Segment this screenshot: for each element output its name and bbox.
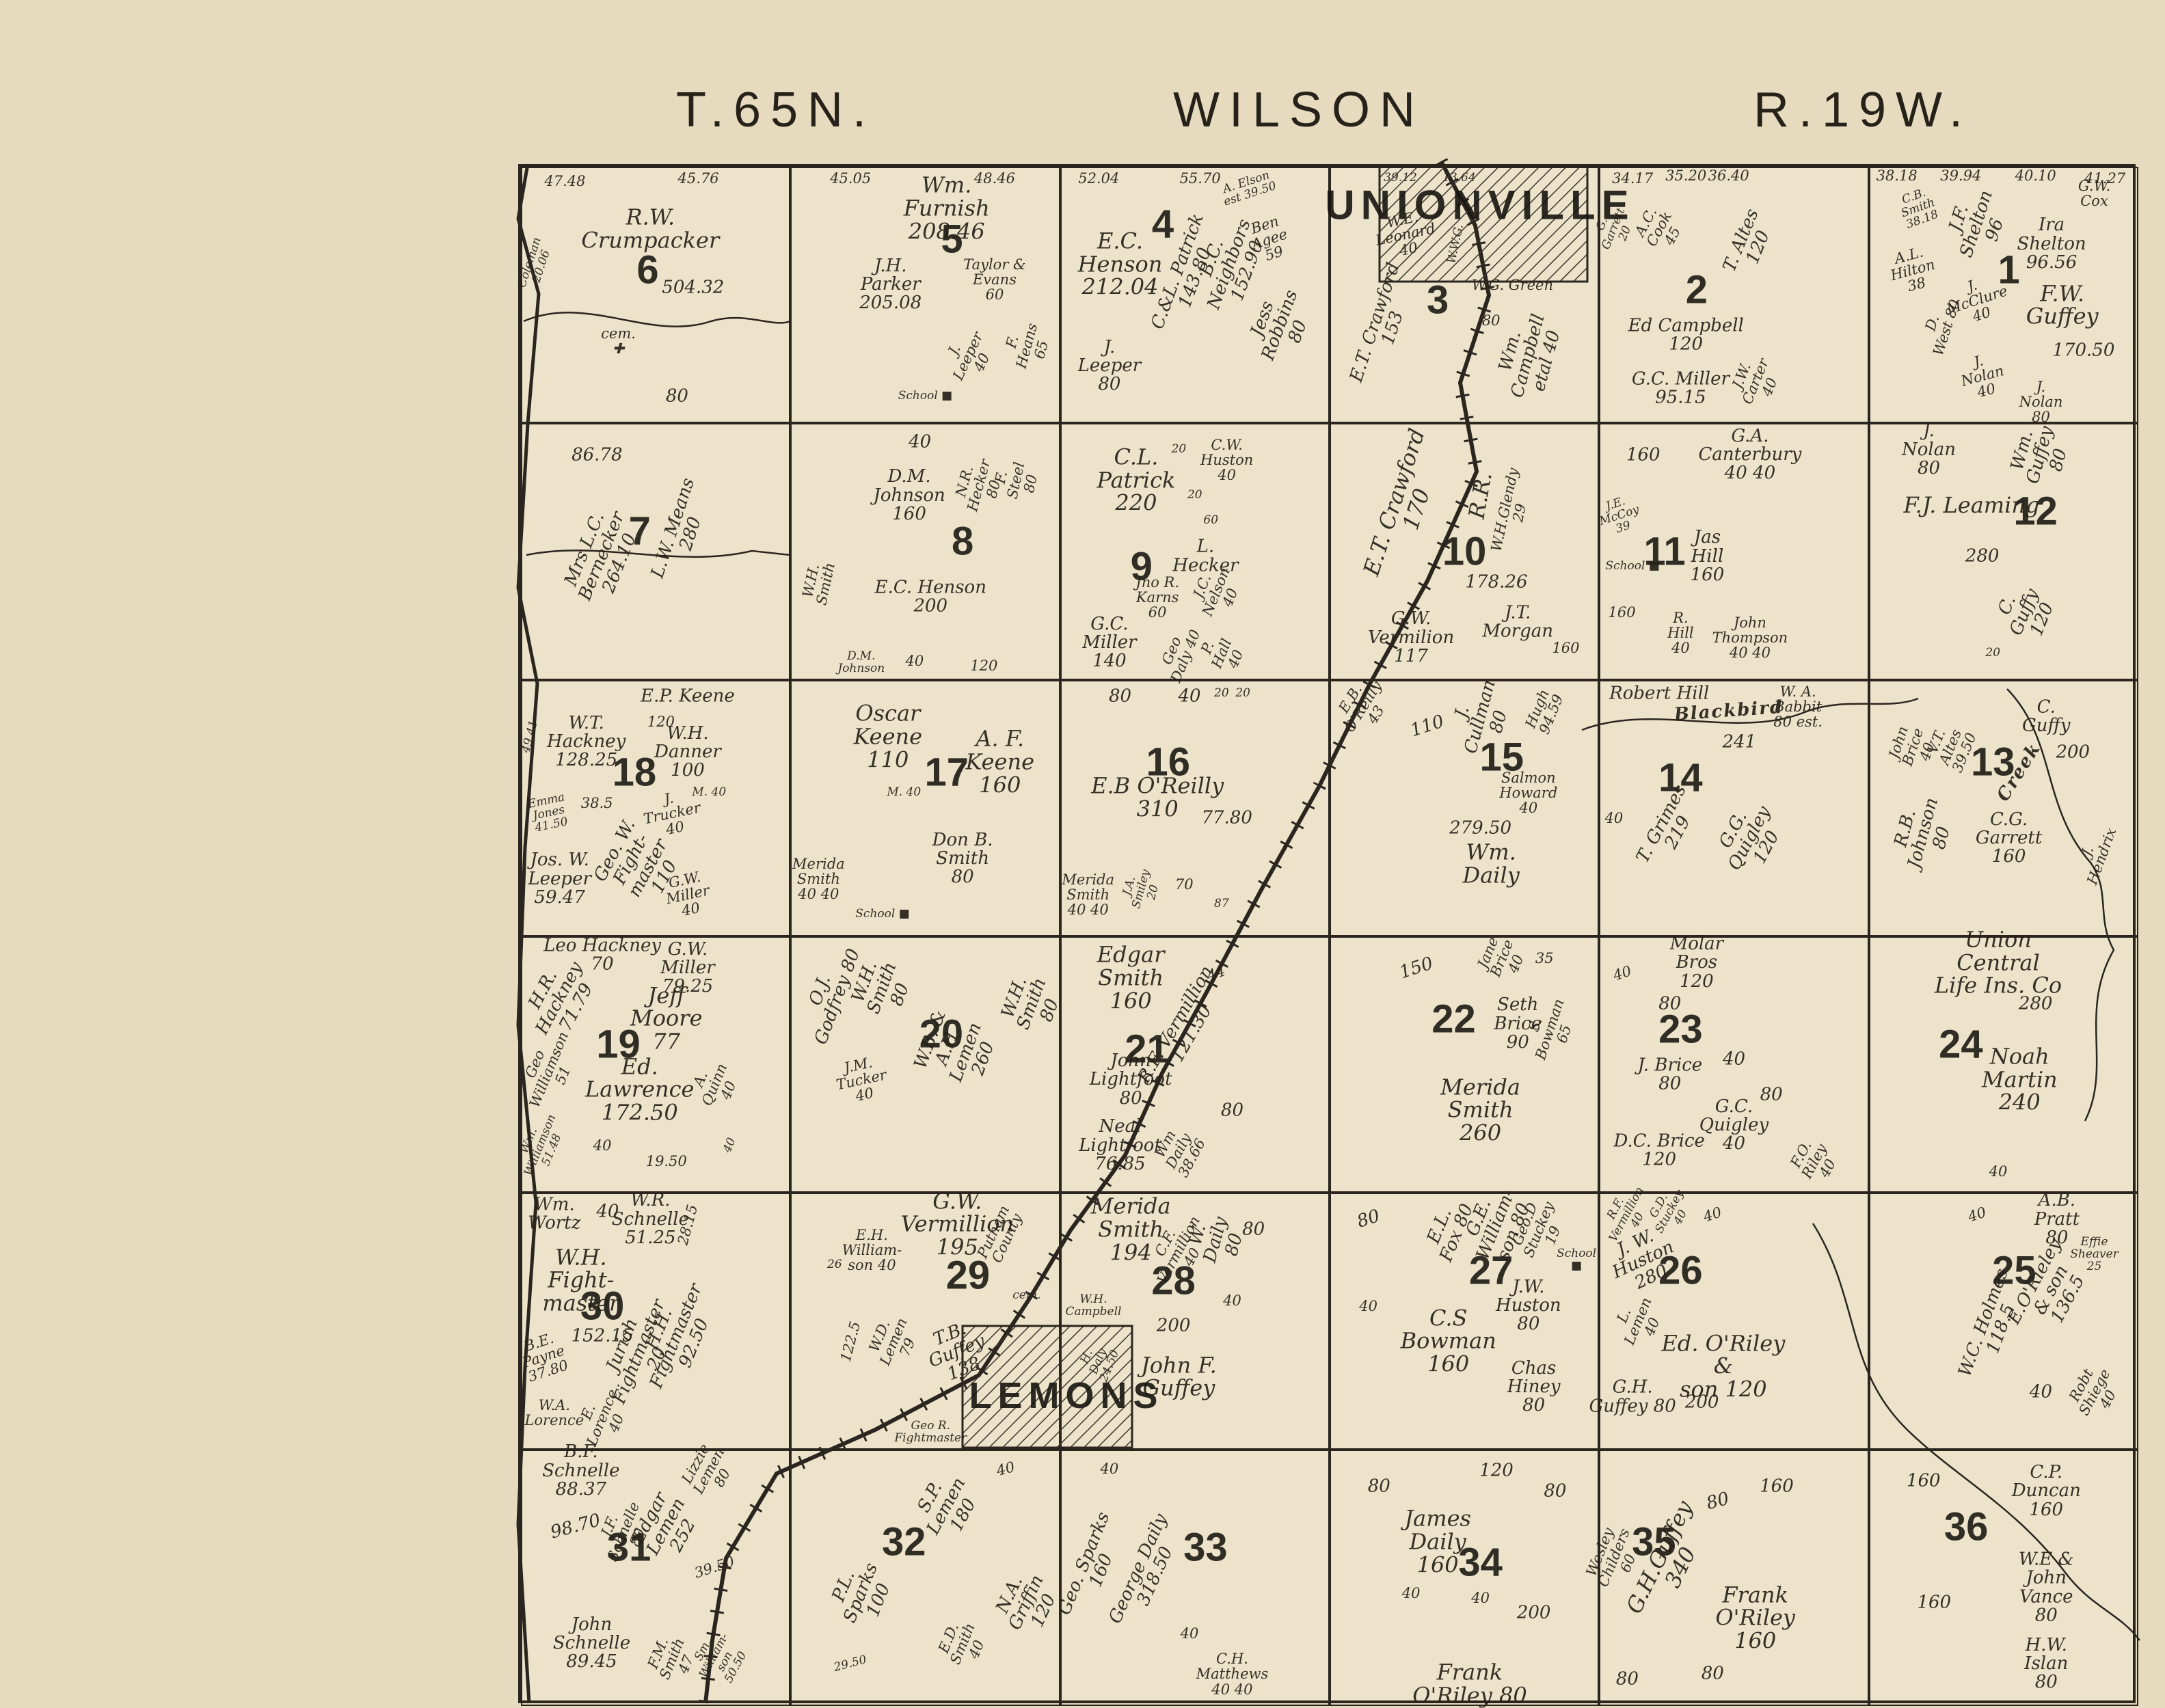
section-36: 36160C.P. Duncan 160W.E & John Vance 80H… <box>1869 1450 2138 1706</box>
parcel-label: R. Hill 40 <box>1667 610 1693 655</box>
parcel-label: 70 <box>1175 877 1194 892</box>
parcel-label: John Schnelle 89.45 <box>553 1616 630 1672</box>
parcel-label: Ed Campbell 120 <box>1628 317 1744 355</box>
parcel-label: G.W. Vermilion 117 <box>1368 610 1454 666</box>
parcel-label: 504.32 <box>662 278 724 297</box>
parcel-label: E.H. William- son 40 <box>842 1228 902 1273</box>
plat-map: 647.4845.76R.W. Crumpacker504.32cem. ✚80… <box>518 164 2136 1703</box>
parcel-label: 40 <box>2030 1383 2052 1401</box>
parcel-label: D.M. Johnson 160 <box>873 467 945 524</box>
parcel-label: 160 <box>1609 605 1636 620</box>
parcel-label: Merida Smith 40 40 <box>792 856 845 902</box>
parcel-label: 80 <box>1616 1670 1639 1688</box>
section-7: 786.78Mrs L.C. Bernecker 264.10L.W. Mean… <box>521 423 790 679</box>
section-27: 2780E.L. Fox 80G.E. William- son 80Geo.D… <box>1330 1193 1599 1449</box>
parcel-label: 35 <box>1535 951 1554 966</box>
town-label-unionville: UNIONVILLE <box>1325 182 1635 229</box>
parcel-label: Sm. William- son 50.50 <box>687 1626 753 1692</box>
parcel-label: F. Steel 80 <box>989 455 1043 506</box>
section-21: 21Edgar Smith 16044R.F. Vermillion 121.3… <box>1060 936 1330 1193</box>
parcel-label: J.T. Morgan <box>1478 604 1558 642</box>
parcel-label: G.C. Quigley 40 <box>1699 1098 1769 1154</box>
parcel-label: W.D. Lemen 79 <box>863 1310 923 1373</box>
parcel-label: 20 <box>1214 688 1229 700</box>
parcel-label: J.W. Carter 40 <box>1725 351 1785 411</box>
parcel-label: 86.78 <box>571 446 622 464</box>
parcel-label: 40 <box>1178 687 1200 705</box>
parcel-label: 40 <box>1359 1299 1377 1314</box>
section-19: 19Leo Hackney 70H.R. Hackney 71.79G.W. M… <box>521 936 790 1193</box>
plat-map-page: T.65N. WILSON R.19W. 647.4845.76R.W. Cru… <box>0 0 2165 1707</box>
parcel-label: C.G. Garrett 160 <box>1976 811 2042 867</box>
parcel-label: Jess Robbins 80 <box>1241 282 1319 369</box>
parcel-label: H.W. Islan 80 <box>2024 1636 2068 1692</box>
section-26: 26R.F. Vermillion 40G.D. Stuckey 4040J. … <box>1599 1193 1868 1449</box>
parcel-label: G.W. Cox <box>2078 178 2110 208</box>
section-33: 3340Geo. Sparks 160George Daily 318.5040… <box>1060 1450 1330 1706</box>
parcel-label: John Thompson 40 40 <box>1712 615 1788 660</box>
parcel-label: 200 <box>2056 743 2090 761</box>
parcel-label: C.B. Smith 38.18 <box>1896 186 1941 232</box>
parcel-label: 40 <box>1611 963 1632 983</box>
parcel-label: Jeff Moore 77 <box>630 984 703 1053</box>
parcel-label: T. Grimes 219 <box>1633 782 1706 875</box>
parcel-label: 80 <box>1658 994 1681 1013</box>
parcel-label: G.C. Miller 95.15 <box>1632 370 1730 408</box>
parcel-label: 178.26 <box>1466 573 1528 591</box>
parcel-label: Edgar Smith 160 <box>1097 944 1165 1013</box>
parcel-label: Chas Hiney 80 <box>1507 1359 1561 1415</box>
parcel-label: A. F. Keene 160 <box>966 728 1034 797</box>
parcel-label: D.C. Brice 120 <box>1613 1133 1704 1170</box>
section-12: 12J. Nolan 80Wm. Guffey 80F.J. Leaming28… <box>1869 423 2138 679</box>
parcel-label: C. Guffy 120 <box>1990 580 2060 645</box>
parcel-label: C. Guffy <box>2022 698 2071 735</box>
parcel-label: Jas Hill 160 <box>1691 528 1725 584</box>
parcel-label: J. Leeper 80 <box>1078 338 1142 394</box>
section-22: 22150Jane Brice 4035Seth Brice 90S. Bowm… <box>1330 936 1599 1193</box>
section-number-22: 22 <box>1431 996 1476 1042</box>
parcel-label: W. A. Babbit 80 est. <box>1773 684 1823 729</box>
section-number-2: 2 <box>1686 267 1708 313</box>
parcel-label: Wm. Guffey 80 <box>2006 420 2075 491</box>
parcel-label: F. Heans 65 <box>999 318 1054 374</box>
parcel-label: 160 <box>1918 1594 1952 1612</box>
parcel-label: 280 <box>2019 994 2053 1013</box>
parcel-label: F.J. Leaming <box>1903 494 2039 517</box>
section-25: 2540A.B. Pratt 80Effie Sheaver 25E.O'Rie… <box>1869 1193 2138 1449</box>
parcel-label: 241 <box>1722 733 1756 751</box>
parcel-label: J.A. Smiley 20 <box>1118 865 1164 913</box>
parcel-label: Hugh 94.59 <box>1523 687 1566 736</box>
parcel-label: 52.04 <box>1078 171 1119 186</box>
parcel-label: 39.50 <box>692 1554 736 1582</box>
parcel-label: Coleman 20.06 <box>516 236 555 293</box>
parcel-label: Ed. Lawrence 172.50 <box>585 1055 694 1124</box>
parcel-label: F.W. Guffey <box>2026 282 2099 328</box>
parcel-label: 40 <box>722 1137 739 1155</box>
parcel-label: 160 <box>1552 640 1579 655</box>
parcel-label: C.W. Huston 40 <box>1200 437 1253 483</box>
parcel-label: 49.41 <box>520 720 541 755</box>
parcel-label: John Lightfoot 80 <box>1090 1052 1172 1108</box>
parcel-label: 120 <box>970 658 997 673</box>
map-name-label: WILSON <box>1173 82 1425 138</box>
parcel-label: N.A. Griffin 120 <box>989 1565 1064 1642</box>
parcel-label: Wm. Wortz <box>528 1196 580 1234</box>
parcel-label: 160 <box>1760 1477 1794 1495</box>
parcel-label: 40 <box>1966 1204 1988 1224</box>
parcel-label: Wm. Williamson 51.48 <box>512 1109 570 1182</box>
parcel-label: E.T. Crawford 170 <box>1360 426 1451 585</box>
parcel-label: Salmon Howard 40 <box>1499 770 1557 815</box>
section-2: 234.1735.2036.40G. Garrett 20A.C. Cook 4… <box>1599 167 1868 423</box>
parcel-label: 40 <box>1989 1164 2008 1179</box>
parcel-label: R.R. <box>1465 471 1496 521</box>
parcel-label: F.O. Riley 40 <box>1786 1135 1843 1188</box>
parcel-label: Taylor & Evans 60 <box>963 257 1026 302</box>
parcel-label: 40 <box>1101 1461 1119 1476</box>
parcel-label: E.C. Henson 212.04 <box>1078 230 1163 299</box>
parcel-label: P.L. Sparks 100 <box>824 1554 899 1632</box>
parcel-label: 38.5 <box>581 796 613 811</box>
township-label: T.65N. <box>676 82 876 138</box>
parcel-label: School ■ <box>855 908 910 921</box>
section-number-10: 10 <box>1442 528 1487 574</box>
parcel-label: 20 <box>1172 444 1187 457</box>
parcel-label: D. West 80 <box>1916 293 1963 357</box>
parcel-label: 200 <box>1685 1393 1719 1411</box>
parcel-label: Merida Smith 40 40 <box>1062 871 1114 917</box>
parcel-label: M. 40 <box>692 787 726 799</box>
parcel-label: Ira Shelton 96.56 <box>2017 216 2086 272</box>
parcel-label: 80 <box>1705 1489 1732 1513</box>
parcel-label: 20 <box>1985 647 2000 660</box>
parcel-label: cem. ✚ <box>601 325 636 355</box>
parcel-label: W.T. Hackney 128.25 <box>547 714 626 770</box>
parcel-label: 35.20 <box>1665 168 1706 183</box>
parcel-label: 170.50 <box>2052 342 2114 360</box>
parcel-label: Jno R. Karns 60 <box>1135 575 1179 620</box>
parcel-label: J.H. Parker 205.08 <box>859 257 922 313</box>
parcel-label: 40 <box>1723 1050 1745 1069</box>
section-number-6: 6 <box>636 247 658 293</box>
parcel-label: 150 <box>1397 954 1436 982</box>
parcel-label: Union Central Life Ins. Co <box>1929 929 2068 998</box>
parcel-label: 47.48 <box>544 174 585 189</box>
section-number-33: 33 <box>1183 1524 1228 1570</box>
parcel-label: 80 <box>1242 1221 1265 1239</box>
parcel-label: C.P. Duncan 160 <box>2012 1463 2081 1519</box>
parcel-label: School ■ <box>898 390 953 403</box>
parcel-label: 40 <box>906 653 924 668</box>
parcel-label: 160 <box>1907 1472 1941 1491</box>
town-label-lemons: LEMONS <box>969 1374 1164 1417</box>
parcel-label: Frank O'Riley 160 <box>1715 1584 1795 1653</box>
parcel-label: Wm. Campbell etal 40 <box>1490 308 1567 405</box>
parcel-label: 160 <box>1626 446 1660 464</box>
parcel-label: W.H. Campbell <box>1066 1294 1122 1318</box>
section-17: 17Oscar Keene 110A. F. Keene 160M. 40Don… <box>790 680 1060 936</box>
parcel-label: W.W.G. <box>1447 223 1467 265</box>
parcel-label: E.P. Keene <box>641 687 735 705</box>
parcel-label: J. Brice 80 <box>1637 1056 1702 1094</box>
parcel-label: E.T. Crawford 153 <box>1347 260 1421 390</box>
parcel-label: W.E & John Vance 80 <box>2001 1551 2092 1625</box>
section-1: 138.1839.9440.1041.27C.B. Smith 38.18J.F… <box>1869 167 2138 423</box>
parcel-label: 40 <box>1702 1204 1723 1224</box>
parcel-label: J. Nolan 80 <box>1902 422 1956 478</box>
section-number-3: 3 <box>1427 277 1449 323</box>
parcel-label: Wm. Furnish 208.46 <box>891 174 1003 243</box>
parcel-label: A.L. Hilton 38 <box>1885 242 1940 297</box>
parcel-label: Frank O'Riley 80 <box>1406 1662 1533 1707</box>
parcel-label: 20 <box>1235 688 1250 700</box>
parcel-label: C.L. Patrick 220 <box>1097 446 1176 515</box>
parcel-label: 279.50 <box>1449 819 1511 837</box>
section-23: 23Molar Bros 1204080J. Brice 804080G.C. … <box>1599 936 1868 1193</box>
parcel-label: G.W. Miller 40 <box>662 868 714 921</box>
parcel-label: J.W. Huston 80 <box>1496 1278 1561 1334</box>
parcel-label: C.H. Matthews 40 40 <box>1196 1651 1269 1696</box>
parcel-label: 40 <box>909 433 931 452</box>
parcel-label: J. Nolan 80 <box>2019 379 2063 424</box>
parcel-label: Mrs L.C. Bernecker 264.10 <box>559 502 645 610</box>
parcel-label: C.S Bowman 160 <box>1401 1307 1496 1376</box>
parcel-label: 80 <box>666 388 688 406</box>
parcel-label: G.G. Quigley 120 <box>1709 795 1791 882</box>
parcel-label: B.E. Payne 37.80 <box>516 1329 571 1385</box>
parcel-label: G.C. Miller 140 <box>1082 615 1136 671</box>
parcel-label: 19.50 <box>646 1154 687 1169</box>
parcel-label: T. Altes 120 <box>1721 207 1780 282</box>
parcel-label: B.F. Schnelle 88.37 <box>542 1443 619 1499</box>
section-15: 15E.B. O'Reilly 43110J. Cullman 80Hugh 9… <box>1330 680 1599 936</box>
section-20: 20O.J. Godfrey 80W.H. Smith 80W.B. & A.H… <box>790 936 1060 1193</box>
section-10: 10E.T. Crawford 170R.R.W.H.Glendy 29178.… <box>1330 423 1599 679</box>
parcel-label: 40 <box>1402 1586 1421 1601</box>
parcel-label: 80 <box>1221 1101 1243 1120</box>
parcel-label: 38.18 <box>1877 168 1918 183</box>
parcel-label: 80 <box>1355 1207 1382 1232</box>
parcel-label: Wm. Daily <box>1438 841 1544 886</box>
section-18: 1849.41E.P. Keene120W.T. Hackney 128.25W… <box>521 680 790 936</box>
parcel-label: W.B. & A.H. Lemen 260 <box>905 989 1010 1110</box>
parcel-label: James Daily 160 <box>1404 1508 1471 1577</box>
parcel-label: Geo R. Fightmaster <box>894 1421 967 1446</box>
parcel-label: E.C. Henson 200 <box>875 579 986 616</box>
parcel-label: 110 <box>1408 713 1447 741</box>
parcel-label: 80 <box>1702 1665 1724 1683</box>
section-8: 840D.M. Johnson 160N.R. Hecker 80F. Stee… <box>790 423 1060 679</box>
section-6: 647.4845.76R.W. Crumpacker504.32cem. ✚80… <box>521 167 790 423</box>
section-11: 11160G.A. Canterbury 40 40J.E. McCoy 39S… <box>1599 423 1868 679</box>
parcel-label: School ■ <box>1605 560 1660 573</box>
parcel-label: Robert Hill <box>1609 685 1709 703</box>
parcel-label: 45.76 <box>678 171 719 186</box>
section-13: 13C. Guffy200CreekJohn Brice 40V.T. Alte… <box>1869 680 2138 936</box>
section-24: 24Union Central Life Ins. Co280Noah Mart… <box>1869 936 2138 1193</box>
parcel-label: Geo Daly 40 <box>1155 622 1203 685</box>
parcel-label: J. Hendrix <box>2070 821 2119 886</box>
section-14: 14Robert HillBlackbird241W. A. Babbit 80… <box>1599 680 1868 936</box>
parcel-label: 80 <box>1544 1482 1566 1500</box>
parcel-label: 80 <box>1368 1477 1390 1495</box>
section-31: 31B.F. Schnelle 88.3798.70J.F. Schnelle … <box>521 1450 790 1706</box>
parcel-label: 40 <box>1223 1293 1241 1308</box>
parcel-label: 60 <box>1203 515 1218 528</box>
parcel-label: 40 <box>995 1459 1017 1478</box>
parcel-label: 55.70 <box>1180 171 1221 186</box>
parcel-label: 77.80 <box>1201 809 1252 828</box>
parcel-label: Robt Shiege 40 <box>2062 1359 2126 1424</box>
parcel-label: Molar Bros 120 <box>1670 935 1724 991</box>
section-4: 452.0455.70E.C. Henson 212.04C.&L. Patri… <box>1060 167 1330 423</box>
parcel-label: W.G. Green <box>1472 277 1553 293</box>
section-16: 1680402020E.B O'Reilly 31077.80Merida Sm… <box>1060 680 1330 936</box>
section-number-36: 36 <box>1944 1504 1989 1550</box>
parcel-label: 120 <box>1479 1462 1514 1480</box>
parcel-label: Ed. O'Riley & son 120 <box>1651 1332 1795 1401</box>
parcel-label: 80 <box>1109 687 1131 705</box>
section-number-17: 17 <box>924 750 969 796</box>
parcel-label: A. Elson est 39.50 <box>1218 168 1278 208</box>
parcel-label: R.B. Johnson 80 <box>1887 791 1960 876</box>
parcel-label: Oscar Keene 110 <box>854 703 922 772</box>
parcel-label: Geo Williamson 51 <box>513 1024 584 1115</box>
parcel-label: E.B. O'Reilly 43 <box>1329 670 1397 743</box>
parcel-label: 40.10 <box>2015 168 2056 183</box>
parcel-label: 26 <box>827 1259 842 1271</box>
parcel-label: 80 <box>1482 313 1501 328</box>
parcel-label: Jos. W. Leeper 59.47 <box>528 851 591 907</box>
section-30: 30Wm. Wortz40W.R. Schnelle 51.2528.15W.H… <box>521 1193 790 1449</box>
parcel-label: cem. <box>1012 1290 1040 1302</box>
parcel-label: Jane Brice 40 <box>1474 932 1530 984</box>
parcel-label: 87 <box>1214 899 1229 911</box>
parcel-label: 98.70 <box>549 1511 603 1543</box>
section-34: 348012080James Daily 1604040200Frank O'R… <box>1330 1450 1599 1706</box>
section-5: 545.0548.46Wm. Furnish 208.46J.H. Parker… <box>790 167 1060 423</box>
parcel-label: G.A. Canterbury 40 40 <box>1698 427 1801 483</box>
parcel-label: School ■ <box>1557 1248 1596 1273</box>
parcel-label: W.H. Danner 100 <box>654 724 721 781</box>
parcel-label: 45.05 <box>830 171 871 186</box>
parcel-label: J. Nolan 40 <box>1955 349 2009 403</box>
parcel-label: W.H. Smith <box>799 558 837 606</box>
parcel-label: 122.5 <box>838 1320 863 1364</box>
parcel-label: 40 <box>1471 1590 1490 1605</box>
section-number-8: 8 <box>952 519 973 565</box>
parcel-label: Neal Lightfoot 76.85 <box>1079 1118 1161 1174</box>
range-label: R.19W. <box>1753 82 1972 138</box>
parcel-label: W.H. Fight- master <box>542 1246 619 1315</box>
parcel-label: 40 <box>1181 1626 1199 1641</box>
parcel-label: 39.94 <box>1940 168 1981 183</box>
parcel-label: 40 <box>593 1138 612 1153</box>
parcel-label: 20 <box>1187 489 1202 502</box>
parcel-label: Don B. Smith 80 <box>932 831 993 887</box>
parcel-label: P. Hall 40 <box>1195 631 1248 676</box>
parcel-label: D.M. Johnson <box>837 651 885 676</box>
parcel-label: Emma Jones 41.50 <box>527 791 571 835</box>
parcel-label: 280 <box>1965 547 2000 566</box>
section-9: 9C.L. Patrick 22020C.W. Huston 402060L. … <box>1060 423 1330 679</box>
parcel-label: H.H. Fightmaster 92.50 <box>630 1275 724 1398</box>
parcel-label: 200 <box>1517 1604 1551 1623</box>
parcel-label: J. Leeper 40 <box>937 323 999 389</box>
parcel-label: E.D. Smith 40 <box>934 1615 992 1672</box>
parcel-label: 40 <box>1604 811 1623 826</box>
section-32: 32S.P. Lemen 18040P.L. Sparks 100E.D. Sm… <box>790 1450 1060 1706</box>
parcel-label: A.C. Cook 45 <box>1630 202 1688 256</box>
parcel-label: L.W. Means 280 <box>649 476 716 586</box>
parcel-label: M. 40 <box>887 787 921 799</box>
parcel-label: Noah Martin 240 <box>1961 1046 2078 1115</box>
parcel-label: R.W. Crumpacker <box>581 206 719 252</box>
parcel-label: J.E. McCoy 39 <box>1594 492 1644 539</box>
parcel-label: J.M. Tucker 40 <box>832 1053 891 1107</box>
parcel-label: Merida Smith 260 <box>1422 1076 1539 1145</box>
section-35: 35Wesley Childers 60G.H.Guffey 34080160F… <box>1599 1450 1868 1706</box>
parcel-label: 200 <box>1157 1317 1191 1336</box>
parcel-label: W.H. Smith 80 <box>997 969 1068 1038</box>
parcel-label: 29.50 <box>833 1654 868 1675</box>
parcel-label: 36.40 <box>1708 168 1749 183</box>
